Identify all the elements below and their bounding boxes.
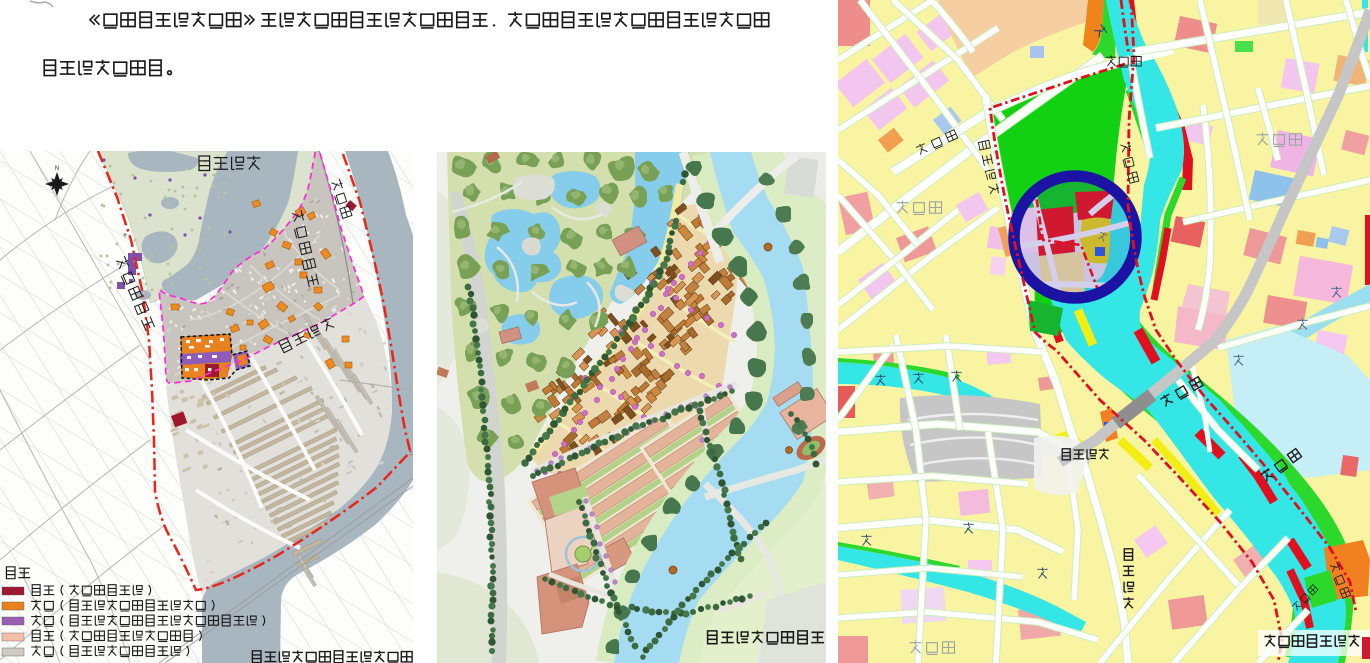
svg-text:N: N [55, 166, 59, 172]
